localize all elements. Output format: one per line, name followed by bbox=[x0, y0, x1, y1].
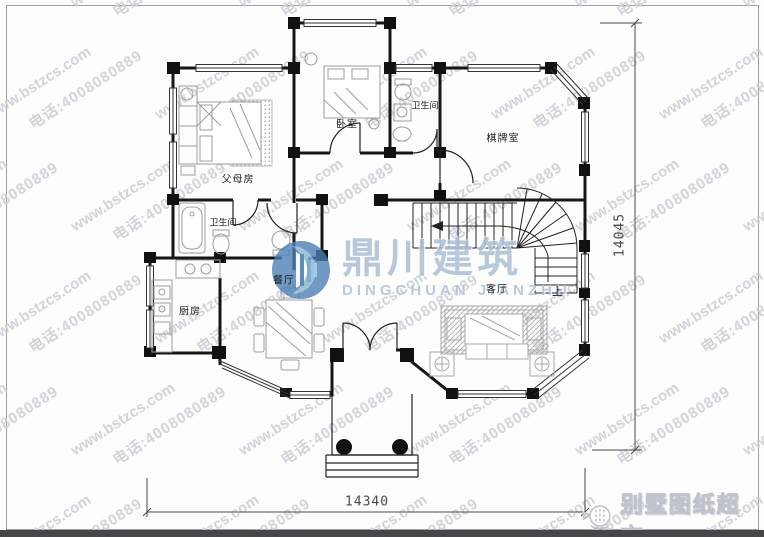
room-label-parents: 父母房 bbox=[222, 171, 255, 186]
stairs-up-label: 上 bbox=[552, 283, 564, 299]
furniture-parents-room bbox=[179, 86, 272, 175]
furniture-dining bbox=[254, 288, 324, 370]
room-label-chess: 棋牌室 bbox=[487, 130, 520, 145]
room-label-dining: 餐厅 bbox=[273, 272, 295, 287]
room-label-bath-top: 卫生间 bbox=[411, 99, 438, 112]
floor-plan-drawing bbox=[0, 0, 764, 537]
furniture-bath-top bbox=[393, 79, 411, 141]
entry-porch bbox=[326, 394, 418, 477]
bottom-bar bbox=[0, 530, 764, 537]
room-label-bath-left: 卫生间 bbox=[209, 216, 236, 229]
dimension-bottom: 14340 bbox=[345, 495, 389, 510]
furniture-living bbox=[430, 306, 554, 376]
furniture-bath-left bbox=[179, 203, 290, 255]
dimension-right: 14045 bbox=[613, 213, 628, 257]
staircase bbox=[413, 188, 577, 293]
floor-plan-sheet: www.bstzcs.com电话:4008080889www.bstzcs.co… bbox=[0, 0, 764, 537]
room-label-bedroom: 卧室 bbox=[336, 116, 358, 131]
room-label-living: 客厅 bbox=[486, 281, 508, 296]
dimension-lines bbox=[143, 19, 642, 517]
room-label-kitchen: 厨房 bbox=[179, 303, 201, 318]
